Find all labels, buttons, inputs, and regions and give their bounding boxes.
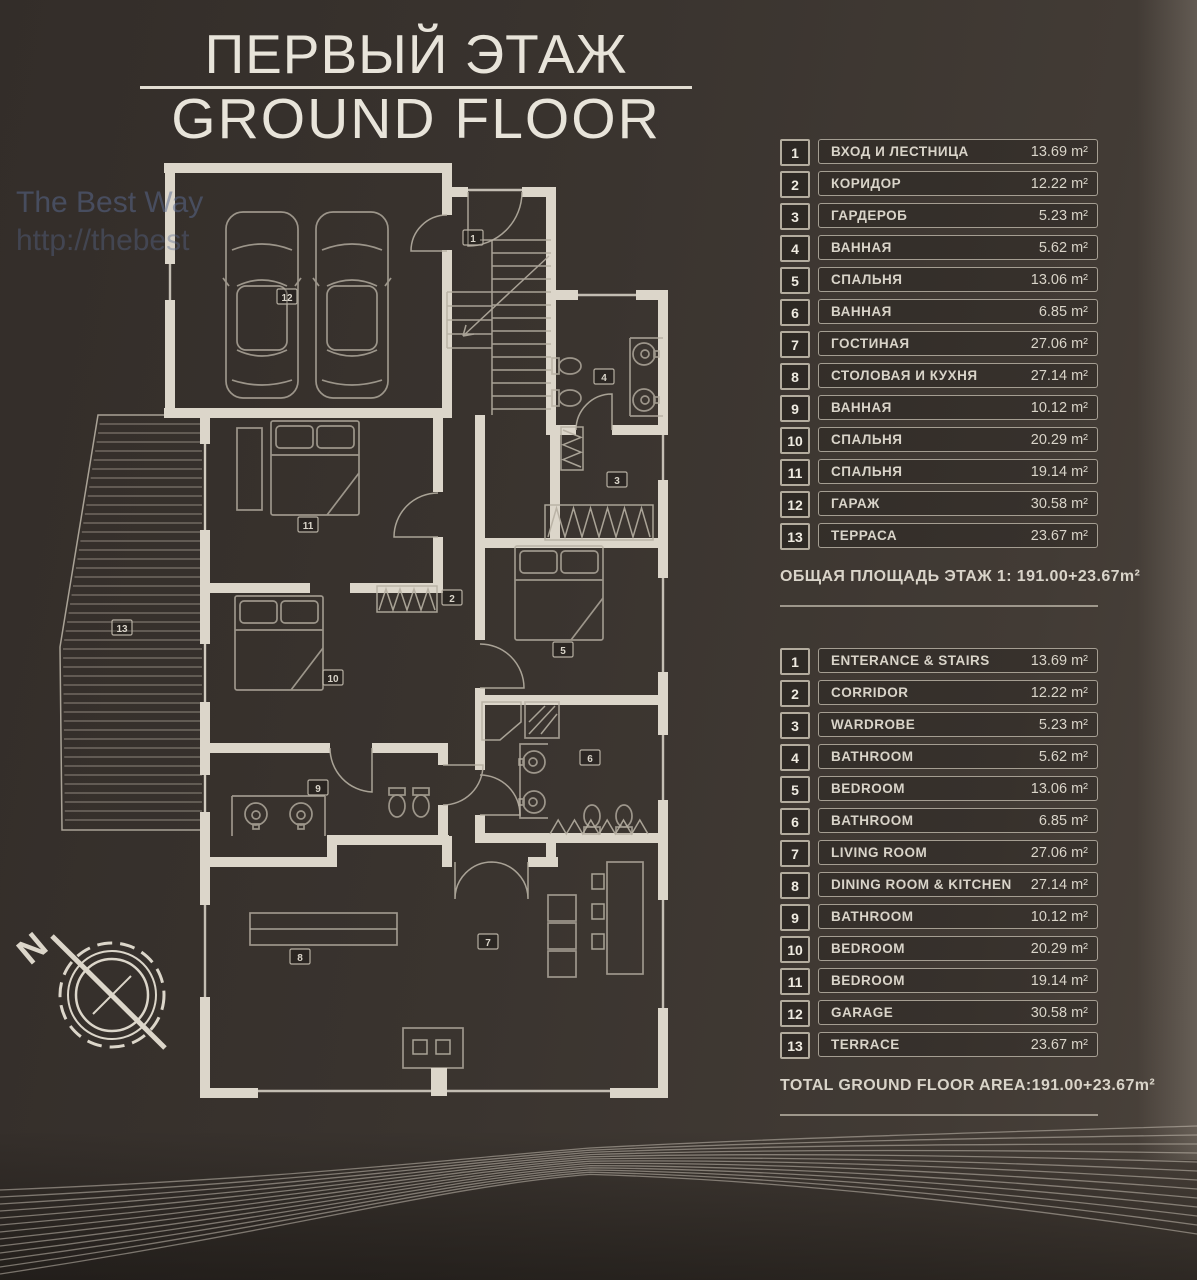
svg-text:12: 12 bbox=[281, 293, 293, 304]
svg-text:4: 4 bbox=[601, 373, 607, 384]
staircase bbox=[447, 240, 551, 415]
page: ПЕРВЫЙ ЭТАЖ GROUND FLOOR bbox=[0, 0, 1197, 1280]
plan-label-4: 4 bbox=[594, 369, 614, 384]
svg-text:2: 2 bbox=[449, 594, 455, 605]
plan-label-13: 13 bbox=[112, 620, 132, 635]
svg-text:6: 6 bbox=[587, 754, 593, 765]
plan-label-2: 2 bbox=[442, 590, 462, 605]
bed-bedroom-10 bbox=[235, 596, 323, 690]
svg-text:8: 8 bbox=[297, 953, 303, 964]
plan-label-3: 3 bbox=[607, 472, 627, 487]
plan-label-10: 10 bbox=[323, 670, 343, 685]
compass-rose: N bbox=[9, 924, 165, 1048]
plan-label-9: 9 bbox=[308, 780, 328, 795]
svg-text:13: 13 bbox=[116, 624, 128, 635]
bathroom-9-fixtures bbox=[232, 788, 429, 836]
entrance-bathroom-walls bbox=[447, 187, 668, 435]
svg-text:1: 1 bbox=[470, 234, 476, 245]
bathroom-6-fixtures bbox=[482, 702, 632, 834]
car-left bbox=[223, 212, 301, 398]
svg-text:5: 5 bbox=[560, 646, 566, 657]
kitchen-unit bbox=[548, 895, 576, 921]
svg-text:7: 7 bbox=[485, 938, 491, 949]
plan-label-8: 8 bbox=[290, 949, 310, 964]
plan-label-5: 5 bbox=[553, 642, 573, 657]
garage-walls bbox=[164, 163, 452, 418]
north-label: N bbox=[9, 924, 55, 972]
living-room-furniture bbox=[250, 862, 643, 1096]
fireplace-chimney bbox=[431, 1068, 447, 1096]
svg-text:9: 9 bbox=[315, 784, 321, 795]
corridor-right-wall bbox=[480, 415, 668, 843]
closet-bedroom-11 bbox=[237, 428, 262, 510]
car-right bbox=[313, 212, 391, 398]
bed-bedroom-5 bbox=[515, 546, 603, 640]
plan-label-12: 12 bbox=[277, 289, 297, 304]
svg-text:3: 3 bbox=[614, 476, 620, 487]
plan-label-1: 1 bbox=[463, 230, 483, 245]
bed-bedroom-11 bbox=[271, 421, 359, 515]
plan-label-7: 7 bbox=[478, 934, 498, 949]
fireplace bbox=[403, 1028, 463, 1068]
dining-table bbox=[607, 862, 643, 974]
plan-label-11: 11 bbox=[298, 517, 318, 532]
svg-text:10: 10 bbox=[327, 674, 339, 685]
svg-text:11: 11 bbox=[303, 521, 314, 532]
floor-plan-drawing: N 12345678910111213 bbox=[0, 0, 1197, 1280]
plan-label-6: 6 bbox=[580, 750, 600, 765]
decorative-swoosh bbox=[0, 1126, 1197, 1274]
